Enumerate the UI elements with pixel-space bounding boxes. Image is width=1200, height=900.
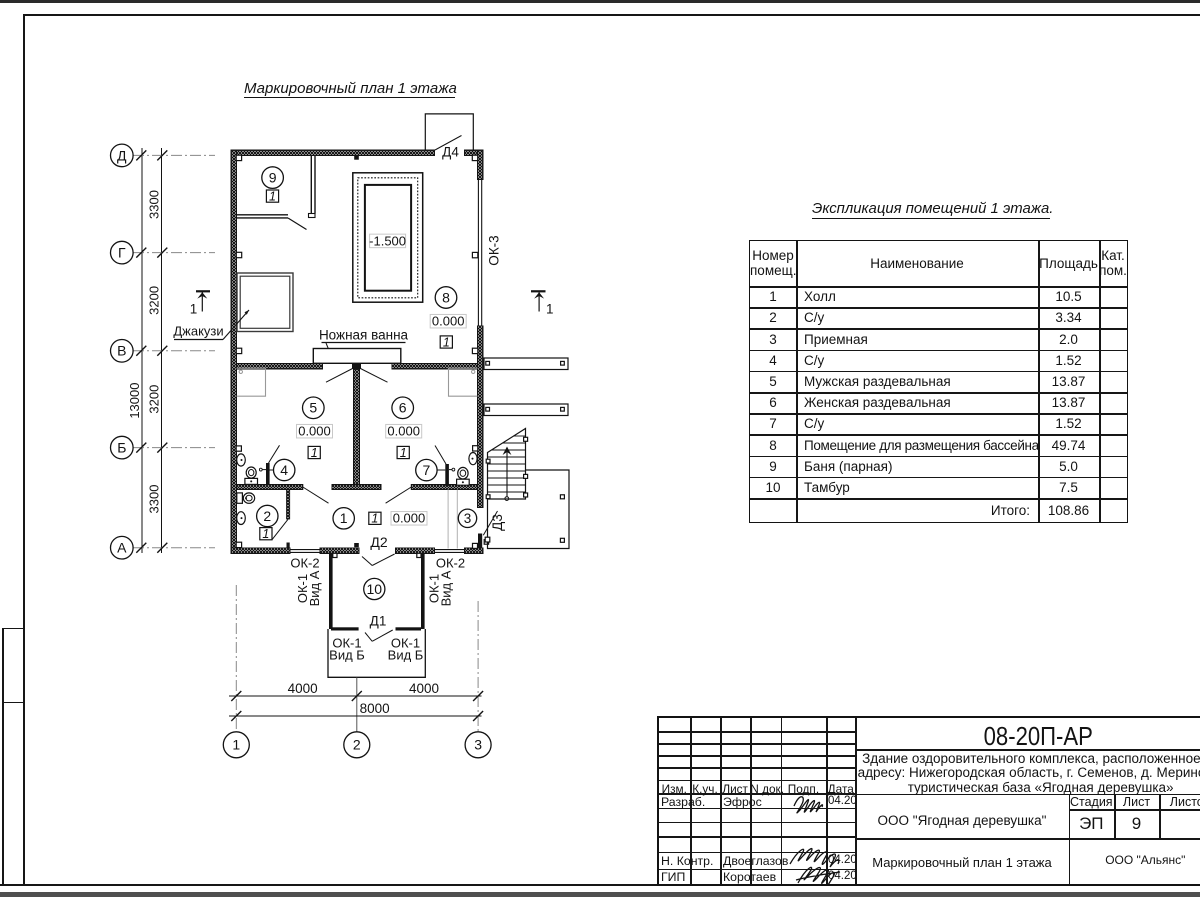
svg-text:4000: 4000 (288, 681, 318, 696)
svg-text:0.000: 0.000 (298, 424, 331, 439)
svg-text:Б: Б (117, 440, 126, 456)
svg-text:8000: 8000 (360, 701, 390, 716)
svg-text:13000: 13000 (127, 383, 142, 419)
svg-text:1: 1 (311, 446, 318, 460)
svg-text:6: 6 (399, 400, 407, 416)
svg-text:7: 7 (423, 462, 431, 478)
svg-text:Д2: Д2 (370, 534, 387, 550)
svg-text:Джакузи: Джакузи (173, 324, 223, 339)
svg-text:2: 2 (263, 508, 271, 524)
svg-text:0.000: 0.000 (393, 511, 426, 526)
svg-text:Вид Б: Вид Б (388, 648, 424, 663)
svg-text:3: 3 (474, 737, 482, 753)
svg-text:3300: 3300 (147, 485, 162, 514)
svg-text:Вид А: Вид А (439, 570, 454, 606)
svg-text:ОК-3: ОК-3 (487, 235, 502, 265)
svg-text:Г: Г (118, 245, 126, 261)
svg-text:А: А (117, 540, 127, 556)
svg-text:9: 9 (269, 170, 277, 186)
svg-text:8: 8 (442, 289, 450, 305)
svg-text:1: 1 (262, 527, 269, 541)
svg-text:1: 1 (340, 510, 348, 526)
svg-text:Д4: Д4 (442, 145, 459, 160)
svg-text:1: 1 (371, 512, 378, 526)
svg-text:1: 1 (546, 302, 554, 317)
svg-text:4: 4 (280, 462, 288, 478)
svg-text:1: 1 (190, 302, 198, 317)
svg-text:1: 1 (269, 189, 276, 203)
svg-text:3300: 3300 (147, 190, 162, 219)
svg-text:1: 1 (400, 446, 407, 460)
svg-text:ОК-2: ОК-2 (436, 556, 465, 571)
svg-text:3200: 3200 (147, 286, 162, 315)
svg-text:Д3: Д3 (490, 514, 505, 531)
svg-text:0.000: 0.000 (387, 424, 420, 439)
svg-text:4000: 4000 (409, 681, 439, 696)
svg-text:3: 3 (464, 511, 472, 526)
svg-text:0.000: 0.000 (432, 314, 465, 329)
svg-text:В: В (117, 343, 126, 359)
svg-text:-1.500: -1.500 (369, 233, 406, 248)
svg-text:5: 5 (309, 400, 317, 416)
svg-text:1: 1 (443, 335, 450, 349)
svg-text:Вид А: Вид А (307, 570, 322, 606)
svg-text:Д1: Д1 (370, 614, 387, 629)
svg-text:Ножная ванна: Ножная ванна (319, 328, 409, 343)
svg-text:3200: 3200 (147, 385, 162, 414)
svg-text:2: 2 (353, 737, 361, 753)
svg-text:ОК-2: ОК-2 (290, 556, 319, 571)
svg-text:1: 1 (232, 737, 240, 753)
svg-text:Д: Д (117, 147, 127, 163)
svg-text:10: 10 (367, 581, 383, 597)
svg-text:Вид Б: Вид Б (329, 648, 365, 663)
